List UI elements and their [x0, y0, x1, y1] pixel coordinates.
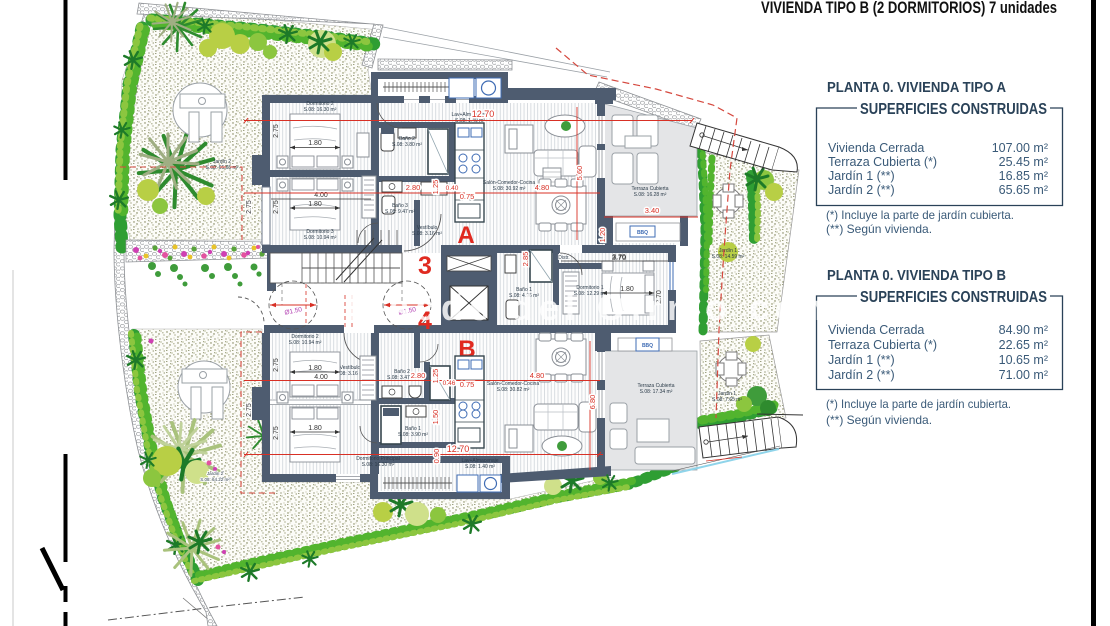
svg-text:Distr.: Distr. [558, 255, 569, 261]
svg-text:(*) Incluye la parte de jardí: (*) Incluye la parte de jardín cubierta. [826, 208, 1014, 222]
svg-text:S.08: 14.59 m²: S.08: 14.59 m² [712, 254, 745, 260]
svg-text:2.75: 2.75 [273, 358, 280, 372]
svg-text:0.75: 0.75 [460, 380, 475, 389]
svg-text:0.40: 0.40 [446, 185, 459, 192]
svg-text:2.80: 2.80 [406, 183, 421, 192]
svg-text:10.65 m²: 10.65 m² [999, 353, 1048, 367]
svg-text:PLANTA 0. VIVIENDA TIPO A: PLANTA 0. VIVIENDA TIPO A [827, 80, 1006, 96]
svg-text:S.08: 3.80 m²: S.08: 3.80 m² [392, 142, 422, 148]
svg-text:4.00: 4.00 [314, 374, 328, 381]
svg-text:0.46: 0.46 [443, 380, 456, 387]
svg-text:2.75: 2.75 [273, 426, 280, 440]
svg-text:S.08: 16.30 m²: S.08: 16.30 m² [304, 107, 337, 113]
svg-text:84.90 m²: 84.90 m² [999, 323, 1048, 337]
svg-text:S.08: 1.40 m²: S.08: 1.40 m² [465, 464, 495, 470]
svg-text:Jardín 2 (**): Jardín 2 (**) [828, 368, 895, 382]
svg-text:A: A [457, 222, 474, 249]
svg-text:(**) Según vivienda.: (**) Según vivienda. [826, 222, 932, 236]
svg-text:Vivienda Cerrada: Vivienda Cerrada [828, 141, 924, 155]
svg-text:S.08: 65.65 m²: S.08: 65.65 m² [206, 165, 239, 171]
svg-text:1.80: 1.80 [308, 365, 322, 372]
svg-text:BBQ: BBQ [637, 230, 648, 236]
svg-text:S.08: 3.16 m²: S.08: 3.16 m² [412, 231, 442, 237]
svg-text:SUPERFICIES CONSTRUIDAS: SUPERFICIES CONSTRUIDAS [860, 289, 1047, 306]
svg-text:(**) Según vivienda.: (**) Según vivienda. [826, 413, 932, 427]
svg-text:12.70: 12.70 [472, 109, 495, 119]
svg-text:1.80: 1.80 [308, 425, 322, 432]
svg-text:PLANTA 0. VIVIENDA TIPO B: PLANTA 0. VIVIENDA TIPO B [827, 268, 1006, 284]
svg-text:1.80: 1.80 [308, 140, 322, 147]
svg-text:S.08: 30.92 m²: S.08: 30.92 m² [493, 186, 526, 192]
svg-text:2.75: 2.75 [246, 200, 253, 214]
svg-text:16.85 m²: 16.85 m² [999, 169, 1048, 183]
svg-text:Terraza Cubierta (*): Terraza Cubierta (*) [828, 155, 937, 169]
svg-text:2.75: 2.75 [273, 124, 280, 138]
svg-text:BBQ: BBQ [642, 343, 653, 349]
svg-text:65.65 m²: 65.65 m² [999, 183, 1048, 197]
svg-text:2.75: 2.75 [246, 403, 253, 417]
svg-text:S.08: 10.94 m²: S.08: 10.94 m² [304, 235, 337, 241]
svg-text:S.08: 10.94 m²: S.08: 10.94 m² [289, 340, 322, 346]
svg-text:S.08: 16.28 m²: S.08: 16.28 m² [634, 192, 667, 198]
svg-text:1.25: 1.25 [431, 180, 440, 195]
svg-text:4.80: 4.80 [535, 183, 550, 192]
svg-text:1.25: 1.25 [431, 369, 440, 384]
svg-text:VIVIENDA TIPO B (2 DORMITORIOS: VIVIENDA TIPO B (2 DORMITORIOS) 7 unidad… [761, 0, 1057, 17]
svg-text:22.65 m²: 22.65 m² [999, 338, 1048, 352]
svg-text:1.80: 1.80 [308, 201, 322, 208]
svg-text:1.50: 1.50 [431, 410, 440, 425]
svg-text:2.85: 2.85 [521, 252, 530, 267]
svg-text:6.80: 6.80 [588, 395, 597, 410]
svg-text:S.08: 9.47 m²: S.08: 9.47 m² [385, 209, 415, 215]
svg-text:1.20: 1.20 [598, 228, 607, 243]
svg-text:2.75: 2.75 [273, 200, 280, 214]
svg-text:Vivienda Cerrada: Vivienda Cerrada [828, 323, 924, 337]
svg-text:Terraza Cubierta (*): Terraza Cubierta (*) [828, 338, 937, 352]
svg-text:3.40: 3.40 [645, 206, 660, 215]
svg-text:107.00 m²: 107.00 m² [992, 141, 1048, 155]
svg-text:0.75: 0.75 [460, 192, 475, 201]
svg-text:12.70: 12.70 [447, 444, 470, 454]
svg-text:5.60: 5.60 [575, 166, 584, 181]
svg-text:0.90: 0.90 [432, 449, 441, 464]
svg-text:Jardín 2: Jardín 2 [207, 471, 224, 476]
svg-text:3.70: 3.70 [612, 253, 627, 262]
svg-text:(*) Incluye la parte de jardín: (*) Incluye la parte de jardín cubierta. [826, 397, 1011, 411]
svg-text:71.00 m²: 71.00 m² [999, 368, 1048, 382]
svg-text:S.08: 16.30 m²: S.08: 16.30 m² [362, 462, 395, 468]
svg-text:S.08: 30.82 m²: S.08: 30.82 m² [497, 387, 530, 393]
svg-text:25.45 m²: 25.45 m² [999, 155, 1048, 169]
svg-text:Jardín 2 (**): Jardín 2 (**) [828, 183, 895, 197]
svg-text:S.08: 64.22 m²: S.08: 64.22 m² [200, 477, 230, 482]
svg-text:4.80: 4.80 [530, 371, 545, 380]
svg-text:S.08: 17.34 m²: S.08: 17.34 m² [640, 389, 673, 395]
svg-text:Alsscds del Olrmo com: Alsscds del Olrmo com [315, 287, 841, 328]
svg-text:Jardín 1 (**): Jardín 1 (**) [828, 169, 895, 183]
svg-text:2.80: 2.80 [411, 371, 426, 380]
svg-text:SUPERFICIES CONSTRUIDAS: SUPERFICIES CONSTRUIDAS [860, 101, 1047, 118]
svg-text:Jardín 1 (**): Jardín 1 (**) [828, 353, 895, 367]
svg-text:3: 3 [418, 252, 432, 280]
svg-text:S.08: 3.90 m²: S.08: 3.90 m² [398, 432, 428, 438]
